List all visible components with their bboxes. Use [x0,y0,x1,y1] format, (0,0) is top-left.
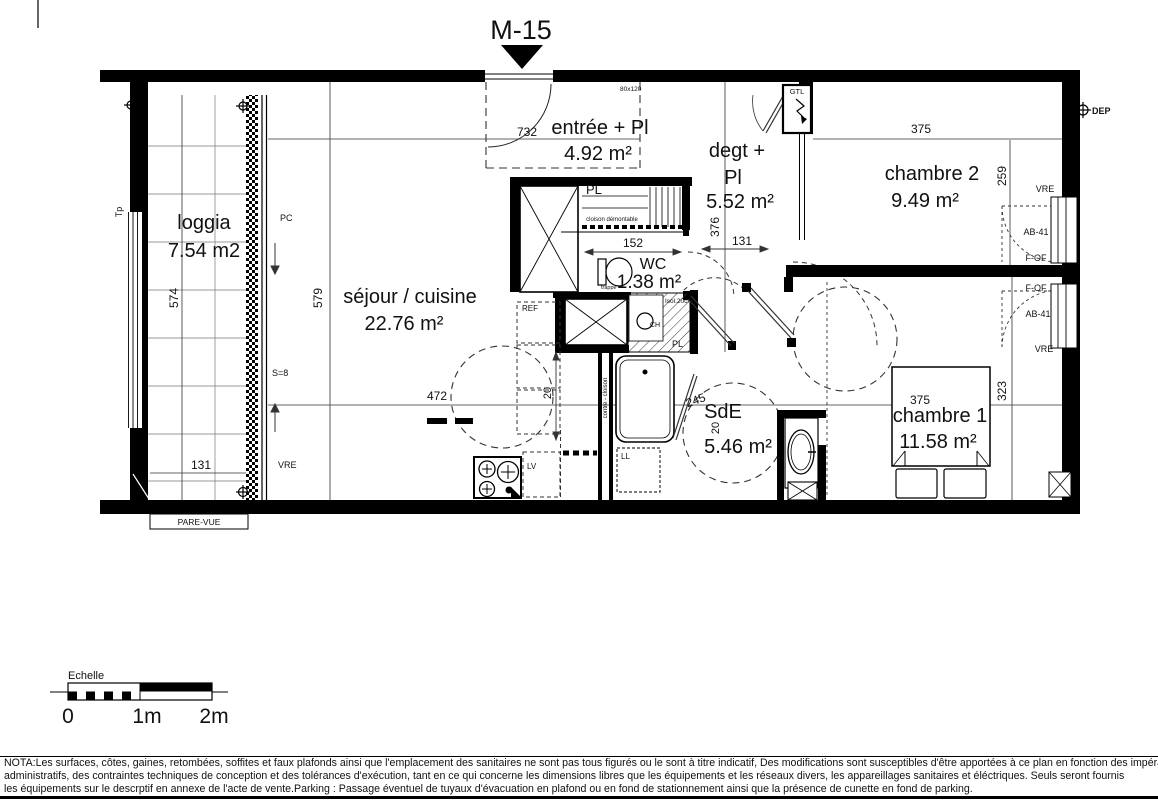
scale-bar: Echelle 0 1m 2m [50,670,229,728]
label-ch1-win-fof: F-OF [1026,283,1047,293]
dim-732: 732 [517,125,537,139]
room-label-chambre1: chambre 1 [893,405,988,427]
label-vre-loggia: VRE [278,460,297,470]
label-ch2-win-ab41: AB-41 [1023,227,1048,237]
scale-tick-0: 0 [62,705,74,728]
floor-plan-page: M-15 [0,0,1158,800]
room-area-sejour: 22.76 m² [365,313,444,335]
room-area-degt: 5.52 m² [706,191,774,213]
nota-line-2: administratifs, des contraintes techniqu… [0,770,1158,783]
entrance-marker-icon [501,45,543,69]
shower-icon [616,356,674,442]
loggia-glazing [246,95,267,500]
chambre2-window [1051,197,1077,263]
room-label-chambre2: chambre 2 [885,163,980,185]
label-pc: PC [280,213,293,223]
dim-131-degt: 131 [732,234,752,248]
bottom-border [0,796,1158,799]
dim-20-kitchen: 20 [542,387,554,399]
label-ch2-win-vre: VRE [1036,184,1055,194]
room-label-entree: entrée + Pl [551,117,648,139]
label-isol: Isol.20cm [665,298,693,305]
chambre2-door-arc [753,95,763,131]
wall-duct [1049,472,1071,497]
room-area-loggia: 7.54 m2 [168,240,240,262]
label-pare-vue: PARE-VUE [178,517,221,527]
label-ch2-win-fof: F-OF [1026,253,1047,263]
room-label-sejour: séjour / cuisine [343,286,476,308]
nota-line-1: NOTA:Les surfaces, côtes, gaines, retomb… [0,757,1158,770]
dim-375-ch1: 375 [910,393,930,407]
duct-shaft-1 [520,186,578,292]
room-area-sde: 5.46 m² [704,436,772,458]
chambre1-window [1051,284,1077,348]
loggia-tile-grid [148,95,248,500]
label-ch: CH [650,322,660,329]
dim-375-ch2: 375 [911,122,931,136]
label-tp: Tp [114,207,124,218]
room-area-entree: 4.92 m² [564,143,632,165]
dishwasher-box [523,452,560,497]
room-label-degt-2: Pl [724,167,742,189]
nota-line-3: les équipements sur le descrptif en anne… [0,783,1158,796]
dim-323: 323 [995,381,1009,401]
label-cloison-demontable: cloison démontable [586,217,638,223]
pillow-icon-2 [944,469,986,498]
chambre2-partition [800,134,805,240]
dim-376: 376 [708,217,722,237]
plan-title: M-15 [490,15,552,45]
label-lv: LV [527,462,537,471]
room-label-sde: SdE [704,401,742,423]
dim-131-loggia: 131 [191,458,211,472]
label-ch1-win-ab41: AB-41 [1025,309,1050,319]
scale-tick-1m: 1m [132,705,161,728]
nota-disclaimer: NOTA:Les surfaces, côtes, gaines, retomb… [0,756,1158,796]
dim-20-sde: 20 [710,422,722,434]
dim-152: 152 [623,236,643,250]
label-ref: REF [522,304,538,313]
washbasin-icon [785,418,818,488]
pillow-icon [896,469,937,498]
dim-574: 574 [167,288,181,308]
room-area-chambre1: 11.58 m² [899,431,977,453]
scale-tick-2m: 2m [199,705,228,728]
label-trappe: trappe [601,285,617,291]
cooktop-icon [474,457,521,498]
label-gtl: GTL [790,87,805,96]
label-s8: S=8 [272,368,288,378]
dim-579: 579 [311,288,325,308]
hall-door-leaves [688,89,794,346]
room-area-wc: 1.38 m² [617,272,681,293]
duct-shaft-2 [565,299,627,345]
dim-472: 472 [427,389,447,403]
label-pl-small: PL [672,339,683,349]
loggia-window [126,212,142,428]
floor-plan-drawing: M-15 [0,0,1158,752]
basin-duct [788,482,817,500]
label-hatch-size: 80x120 [620,86,642,93]
scale-label: Echelle [68,670,104,682]
label-dep: DEP [1092,106,1111,116]
room-label-loggia: loggia [177,212,231,234]
label-ll: LL [621,452,630,461]
room-area-chambre2: 9.49 m² [891,190,959,212]
room-label-wc: WC [640,256,667,273]
dim-259: 259 [995,166,1009,186]
label-ch1-win-vre: VRE [1035,344,1054,354]
room-label-degt: degt + [709,140,765,162]
label-contre-cloison: contre - cloison [603,378,609,419]
label-pl-closet: PL [586,182,602,197]
sliding-arrows [271,243,279,432]
table-dashes [427,418,473,424]
